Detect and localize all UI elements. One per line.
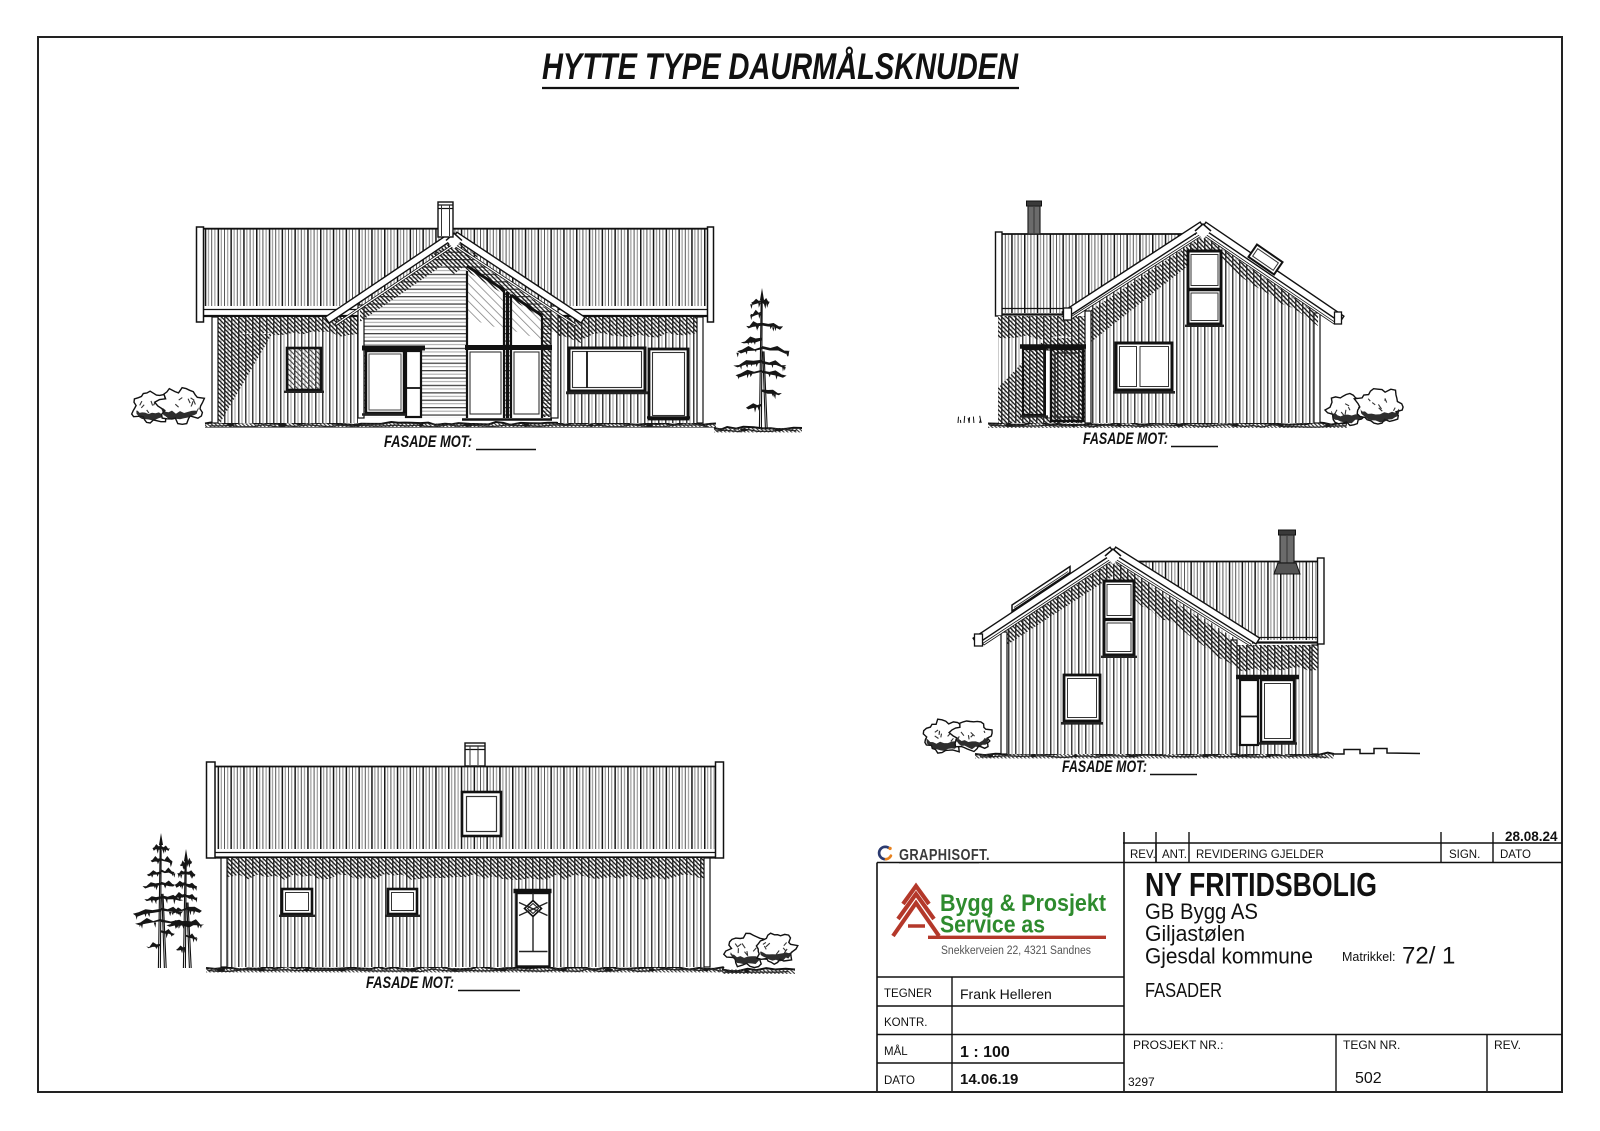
svg-text:DATO: DATO	[1500, 849, 1531, 861]
svg-text:14.06.19: 14.06.19	[960, 1071, 1018, 1088]
svg-text:ANT.: ANT.	[1162, 849, 1187, 861]
svg-text:Snekkerveien 22, 4321 Sandnes: Snekkerveien 22, 4321 Sandnes	[941, 945, 1091, 957]
svg-text:REV.: REV.	[1130, 849, 1156, 861]
svg-text:TEGN NR.: TEGN NR.	[1343, 1038, 1400, 1052]
svg-text:REVIDERING GJELDER: REVIDERING GJELDER	[1196, 849, 1324, 861]
svg-text:Gjesdal kommune: Gjesdal kommune	[1145, 944, 1313, 969]
svg-text:72/ 1: 72/ 1	[1402, 943, 1455, 970]
svg-text:FASADE MOT:: FASADE MOT:	[1062, 757, 1147, 776]
svg-text:GRAPHISOFT.: GRAPHISOFT.	[899, 847, 990, 864]
svg-text:Matrikkel:: Matrikkel:	[1342, 950, 1395, 964]
svg-text:REV.: REV.	[1494, 1038, 1521, 1052]
svg-text:1 : 100: 1 : 100	[960, 1044, 1010, 1061]
svg-text:FASADER: FASADER	[1145, 980, 1222, 1002]
svg-text:28.08.24: 28.08.24	[1505, 829, 1558, 844]
svg-text:Service as: Service as	[940, 912, 1045, 939]
svg-text:NY FRITIDSBOLIG: NY FRITIDSBOLIG	[1145, 866, 1377, 903]
svg-text:DATO: DATO	[884, 1075, 915, 1087]
svg-text:Giljastølen: Giljastølen	[1145, 921, 1245, 946]
svg-text:PROSJEKT NR.:: PROSJEKT NR.:	[1133, 1038, 1223, 1052]
svg-text:MÅL: MÅL	[884, 1045, 908, 1058]
svg-text:3297: 3297	[1128, 1075, 1155, 1089]
svg-text:TEGNER: TEGNER	[884, 988, 932, 1000]
svg-text:SIGN.: SIGN.	[1449, 849, 1480, 861]
svg-text:FASADE MOT:: FASADE MOT:	[1083, 429, 1168, 448]
svg-text:502: 502	[1355, 1070, 1382, 1087]
svg-text:KONTR.: KONTR.	[884, 1017, 927, 1029]
svg-text:HYTTE TYPE DAURMÅLSKNUDEN: HYTTE TYPE DAURMÅLSKNUDEN	[542, 46, 1019, 87]
svg-text:FASADE MOT:: FASADE MOT:	[366, 973, 454, 992]
svg-text:Frank Helleren: Frank Helleren	[960, 986, 1052, 1002]
svg-text:FASADE MOT:: FASADE MOT:	[384, 432, 472, 451]
